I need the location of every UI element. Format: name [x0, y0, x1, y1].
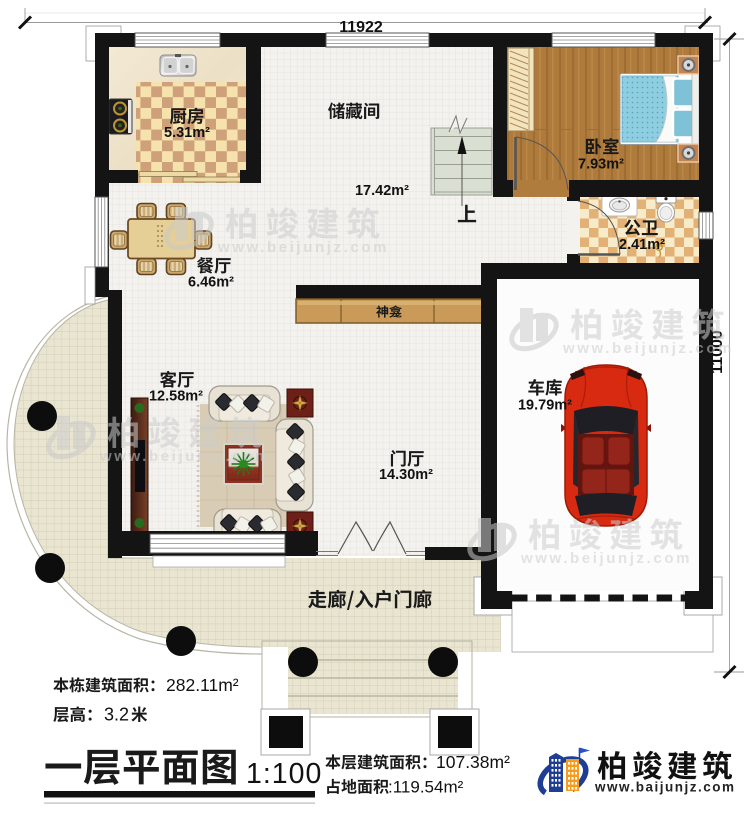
svg-text:www.beijunjz.com: www.beijunjz.com	[562, 340, 734, 357]
svg-text:www.beijunjz.com: www.beijunjz.com	[99, 448, 271, 465]
svg-text:7.93m²: 7.93m²	[578, 157, 624, 173]
svg-text:1:100: 1:100	[246, 758, 322, 790]
svg-text:12.58m²: 12.58m²	[149, 389, 203, 405]
svg-text:17.42m²: 17.42m²	[355, 183, 409, 199]
svg-text:3.2: 3.2	[104, 705, 129, 725]
svg-text:11922: 11922	[339, 19, 383, 36]
svg-text:282.11m²: 282.11m²	[166, 675, 239, 695]
svg-text:19.79m²: 19.79m²	[518, 398, 572, 414]
svg-text:www.beijunjz.com: www.beijunjz.com	[217, 239, 389, 256]
svg-text:107.38m²: 107.38m²	[436, 752, 510, 772]
svg-text:6.46m²: 6.46m²	[188, 275, 234, 291]
svg-text:5.31m²: 5.31m²	[164, 125, 210, 141]
svg-text:www.beijunjz.com: www.beijunjz.com	[520, 550, 692, 567]
svg-text:14.30m²: 14.30m²	[379, 467, 433, 483]
svg-text::119.54m²: :119.54m²	[388, 778, 464, 797]
svg-text:www.baijunjz.com: www.baijunjz.com	[594, 780, 736, 795]
svg-text:2.41m²: 2.41m²	[619, 237, 665, 253]
